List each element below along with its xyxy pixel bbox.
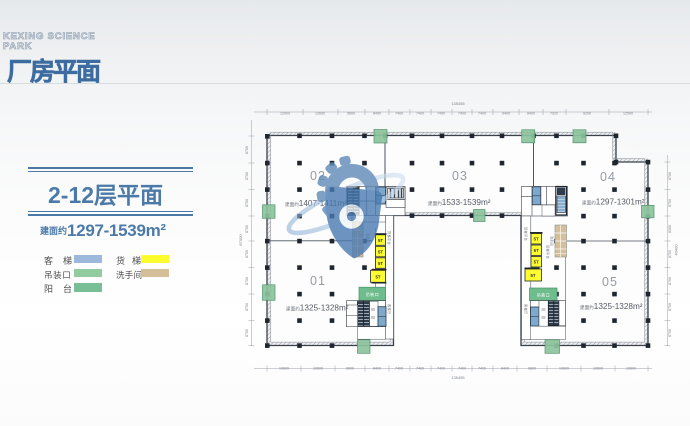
svg-text:135455: 135455 — [451, 375, 465, 380]
svg-text:8700: 8700 — [668, 250, 672, 258]
svg-text:10600: 10600 — [626, 366, 636, 370]
svg-text:12900: 12900 — [280, 112, 290, 116]
svg-text:10600: 10600 — [313, 366, 323, 370]
svg-text:货梯平台: 货梯平台 — [387, 231, 392, 245]
svg-text:8300: 8300 — [668, 225, 672, 233]
svg-text:8700: 8700 — [668, 199, 672, 207]
svg-text:8700: 8700 — [668, 172, 672, 180]
svg-text:8700: 8700 — [245, 225, 249, 233]
svg-text:9200: 9200 — [583, 112, 591, 116]
svg-text:货梯平台: 货梯平台 — [524, 227, 529, 241]
svg-text:7400: 7400 — [416, 112, 424, 116]
svg-text:8400: 8400 — [373, 112, 381, 116]
svg-text:5T: 5T — [530, 273, 535, 278]
svg-text:7400: 7400 — [478, 366, 486, 370]
svg-text:10600: 10600 — [593, 366, 603, 370]
svg-text:7400: 7400 — [395, 112, 403, 116]
svg-text:7400: 7400 — [478, 112, 486, 116]
svg-text:5T: 5T — [378, 261, 383, 266]
svg-text:12600: 12600 — [315, 112, 325, 116]
svg-text:9600: 9600 — [346, 366, 354, 370]
svg-text:87000: 87000 — [238, 234, 243, 246]
svg-text:5T: 5T — [534, 260, 539, 265]
svg-text:货梯平台: 货梯平台 — [546, 245, 551, 259]
svg-text:8700: 8700 — [245, 199, 249, 207]
svg-text:8700: 8700 — [668, 277, 672, 285]
svg-text:8400: 8400 — [501, 366, 509, 370]
svg-text:8400: 8400 — [527, 112, 535, 116]
svg-text:5T: 5T — [534, 248, 539, 253]
svg-text:7920: 7920 — [550, 112, 558, 116]
svg-text:5T: 5T — [378, 238, 383, 243]
svg-text:客梯厅: 客梯厅 — [387, 304, 392, 315]
svg-text:客梯厅: 客梯厅 — [524, 304, 529, 315]
svg-text:04: 04 — [600, 170, 616, 184]
svg-text:40400: 40400 — [674, 244, 679, 256]
svg-text:7400: 7400 — [416, 366, 424, 370]
svg-text:7400: 7400 — [437, 366, 445, 370]
svg-text:8700: 8700 — [668, 303, 672, 311]
svg-text:8700: 8700 — [245, 277, 249, 285]
svg-text:8700: 8700 — [245, 172, 249, 180]
svg-text:135455: 135455 — [451, 101, 465, 106]
svg-text:9600: 9600 — [528, 366, 536, 370]
svg-text:8700: 8700 — [245, 329, 249, 337]
svg-text:7400: 7400 — [437, 112, 445, 116]
svg-text:7400: 7400 — [458, 112, 466, 116]
svg-text:5T: 5T — [378, 249, 383, 254]
svg-text:9400: 9400 — [502, 112, 510, 116]
svg-text:10600: 10600 — [559, 366, 569, 370]
svg-text:7400: 7400 — [395, 366, 403, 370]
svg-text:10600: 10600 — [279, 366, 289, 370]
svg-text:吊装口: 吊装口 — [366, 291, 379, 298]
svg-text:5T: 5T — [534, 237, 539, 242]
svg-text:8700: 8700 — [245, 146, 249, 154]
svg-text:7400: 7400 — [458, 366, 466, 370]
svg-text:8400: 8400 — [373, 366, 381, 370]
svg-text:8700: 8700 — [245, 303, 249, 311]
svg-text:12500: 12500 — [623, 112, 633, 116]
svg-text:8700: 8700 — [668, 329, 672, 337]
svg-text:05: 05 — [602, 275, 618, 289]
svg-text:01: 01 — [310, 274, 326, 288]
svg-text:9600: 9600 — [347, 112, 355, 116]
svg-text:8700: 8700 — [245, 250, 249, 258]
svg-text:03: 03 — [452, 169, 468, 183]
svg-text:5T: 5T — [375, 274, 380, 279]
svg-text:吊装口: 吊装口 — [537, 291, 550, 298]
